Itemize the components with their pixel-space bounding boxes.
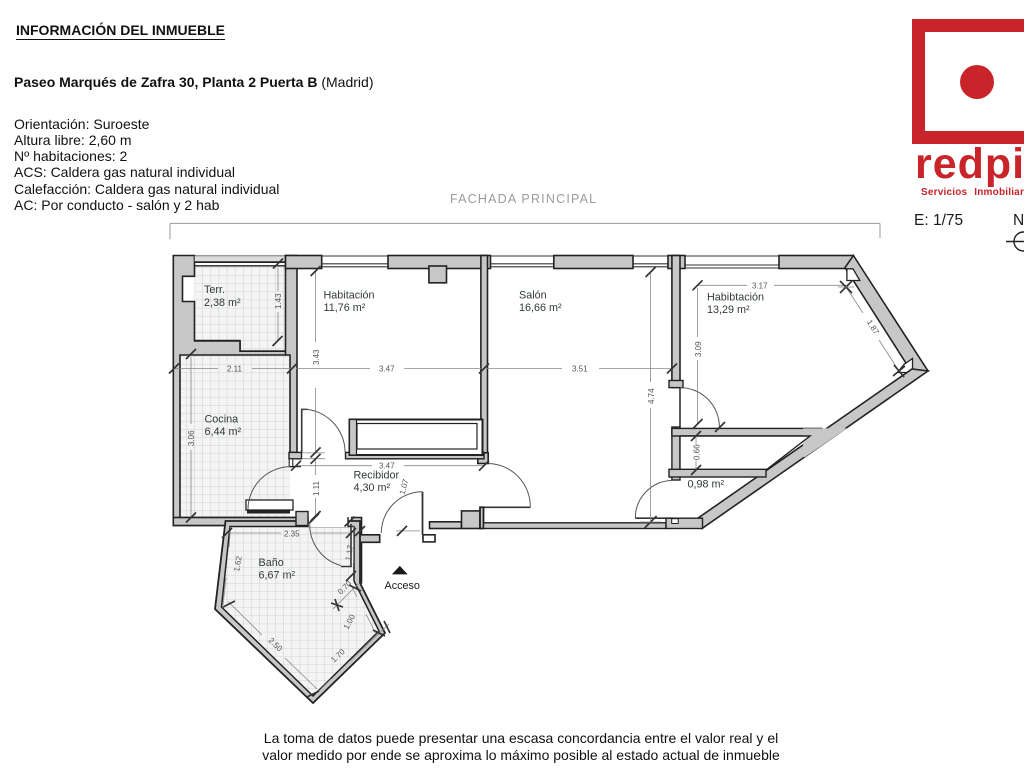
svg-text:Salón: Salón xyxy=(519,290,547,302)
svg-text:16,66 m²: 16,66 m² xyxy=(519,302,562,314)
svg-text:3.17: 3.17 xyxy=(752,282,768,291)
svg-text:13,29 m²: 13,29 m² xyxy=(707,304,750,316)
svg-text:6,67 m²: 6,67 m² xyxy=(259,570,296,582)
svg-text:Habibtación: Habibtación xyxy=(707,292,764,304)
svg-text:1.43: 1.43 xyxy=(274,293,283,309)
svg-text:2,38 m²: 2,38 m² xyxy=(204,297,241,309)
svg-text:0.66: 0.66 xyxy=(692,444,701,460)
svg-text:2.35: 2.35 xyxy=(284,530,300,539)
svg-text:Cocina: Cocina xyxy=(205,414,239,426)
svg-text:11,76 m²: 11,76 m² xyxy=(324,302,366,314)
svg-text:3.47: 3.47 xyxy=(379,365,395,374)
svg-text:1.11: 1.11 xyxy=(312,480,321,496)
svg-text:Baño: Baño xyxy=(259,557,284,569)
svg-text:4,30 m²: 4,30 m² xyxy=(354,482,391,494)
svg-text:6,44 m²: 6,44 m² xyxy=(205,426,242,438)
svg-text:3.06: 3.06 xyxy=(187,430,196,446)
svg-text:1.07: 1.07 xyxy=(398,478,411,496)
svg-text:3.43: 3.43 xyxy=(312,349,321,365)
svg-text:3.51: 3.51 xyxy=(572,365,588,374)
svg-text:Habitación: Habitación xyxy=(324,290,375,302)
svg-text:2.11: 2.11 xyxy=(227,365,243,374)
svg-text:Acceso: Acceso xyxy=(385,580,420,592)
svg-text:0,98 m²: 0,98 m² xyxy=(688,479,725,491)
svg-text:Terr.: Terr. xyxy=(204,284,225,296)
svg-text:4.74: 4.74 xyxy=(647,388,656,404)
svg-text:3.09: 3.09 xyxy=(694,341,703,357)
svg-text:Recibidor: Recibidor xyxy=(354,470,400,482)
